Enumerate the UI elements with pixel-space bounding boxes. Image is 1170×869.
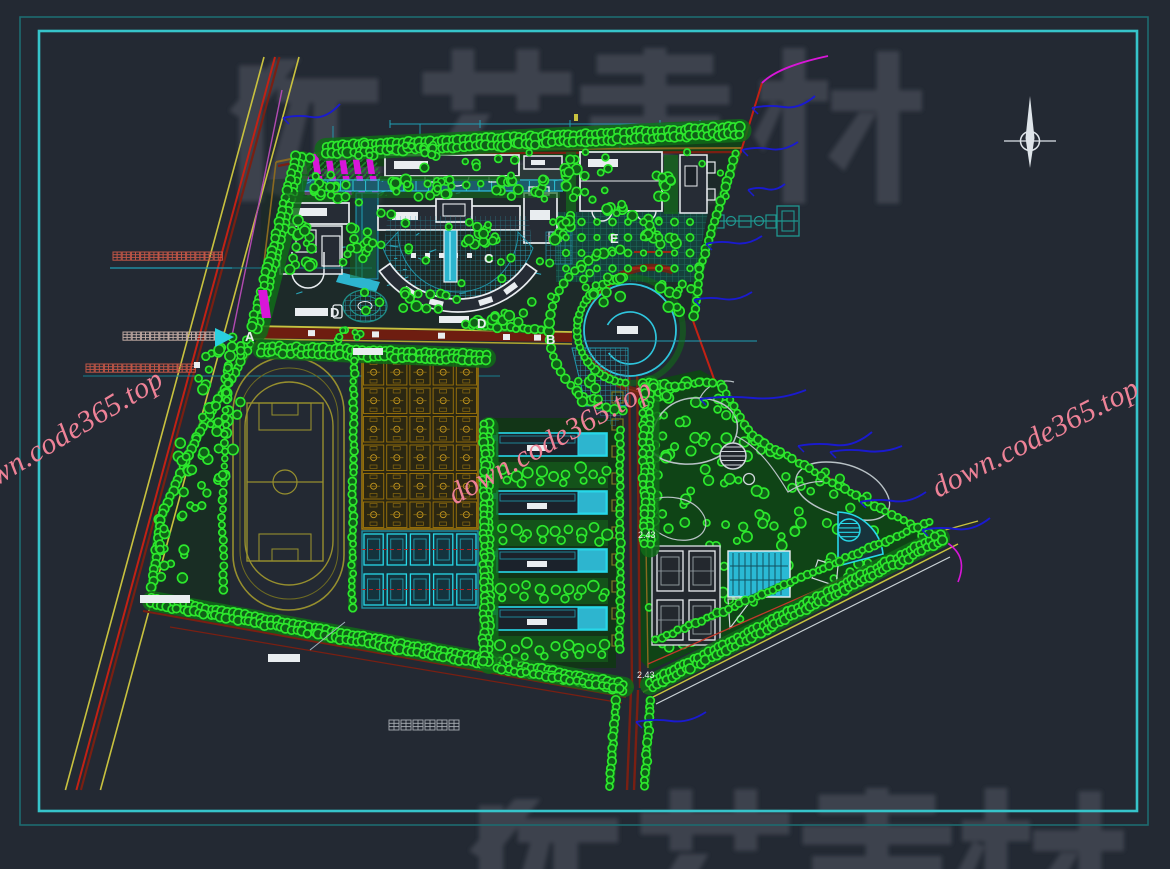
svg-text:C: C	[484, 251, 494, 266]
svg-text:D: D	[477, 316, 486, 331]
svg-text:D: D	[330, 305, 339, 320]
svg-text:2.43: 2.43	[638, 530, 656, 540]
svg-text:B: B	[546, 332, 555, 347]
svg-text:A: A	[245, 329, 255, 344]
svg-text:E: E	[610, 231, 619, 246]
svg-text:2.43: 2.43	[637, 670, 655, 680]
